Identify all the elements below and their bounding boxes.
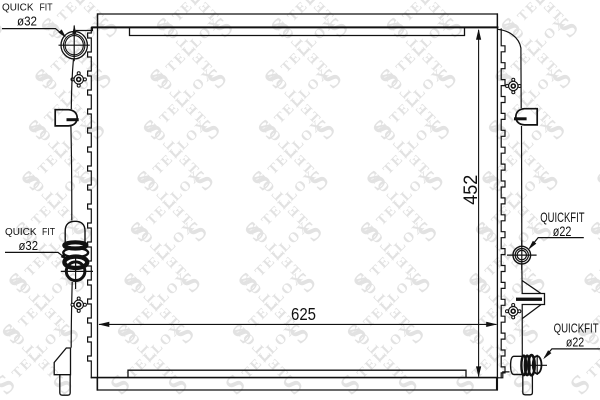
svg-text:QUICKFIT: QUICKFIT [554,320,599,335]
svg-text:625: 625 [291,304,316,324]
svg-text:QUICK: QUICK [2,2,34,13]
svg-text:QUICK: QUICK [5,227,37,238]
svg-text:QUICKFIT: QUICKFIT [540,210,585,225]
svg-text:ø32: ø32 [17,15,37,29]
svg-text:FIT: FIT [40,2,54,13]
svg-text:ø32: ø32 [19,239,39,253]
svg-text:452: 452 [460,175,482,205]
svg-text:ø22: ø22 [553,224,572,239]
svg-text:ø22: ø22 [566,335,584,350]
svg-text:FIT: FIT [42,227,56,238]
